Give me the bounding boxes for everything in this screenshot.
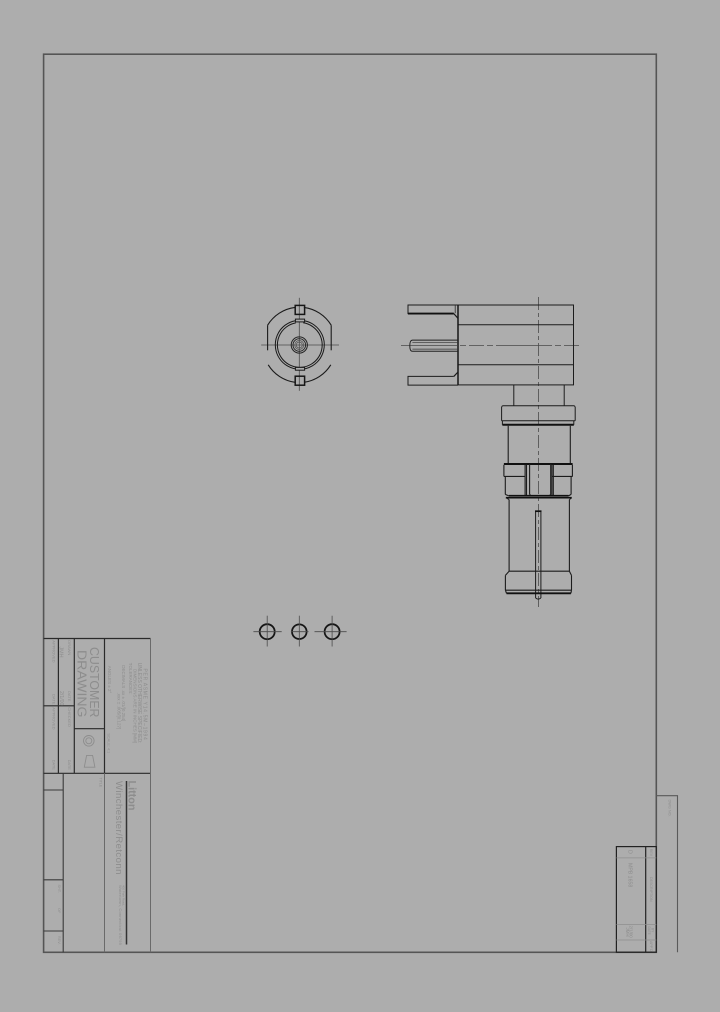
svg-text:DRAWN: DRAWN [67,640,72,655]
svg-text:APPROVED: APPROVED [52,640,57,662]
svg-text:DATE: DATE [647,927,651,935]
svg-text:DATE: DATE [67,691,72,702]
svg-text:DATE: DATE [52,694,57,705]
svg-text:Litton: Litton [126,781,138,811]
svg-text:DATE: DATE [52,760,57,771]
svg-text:REV: REV [649,849,653,857]
svg-text:DWG NO.: DWG NO. [668,800,672,817]
svg-text:DESCRIPTION: DESCRIPTION [649,877,653,902]
svg-text:SHT.: SHT. [57,885,61,893]
svg-text:TITLE: TITLE [98,778,102,788]
svg-text:TOLERANCES:: TOLERANCES: [128,663,133,695]
svg-text:D: D [627,850,633,854]
svg-text:Watertown, Connecticut 06795: Watertown, Connecticut 06795 [118,885,123,946]
svg-text:OF: OF [57,908,61,914]
svg-text:SCALE: 4:1: SCALE: 4:1 [106,733,110,753]
svg-text:MPB 1658: MPB 1658 [627,863,633,887]
svg-text:APPROVED: APPROVED [52,707,57,729]
svg-text:JMH: JMH [625,928,630,937]
svg-text:REV.: REV. [57,936,61,945]
svg-text:APP’D: APP’D [649,941,653,952]
svg-text:CHECKED: CHECKED [67,707,72,727]
svg-text:JMH: JMH [58,647,64,658]
svg-text:2/1/00: 2/1/00 [58,691,64,706]
svg-text:DRAWING: DRAWING [74,650,88,718]
svg-text:DATE: DATE [67,760,72,771]
svg-text:ANGLES ± 2°: ANGLES ± 2° [107,666,112,694]
svg-text:.xxx ± .005/[0.127]: .xxx ± .005/[0.127] [117,693,122,730]
svg-text:Winchester/Retconn: Winchester/Retconn [113,781,124,875]
